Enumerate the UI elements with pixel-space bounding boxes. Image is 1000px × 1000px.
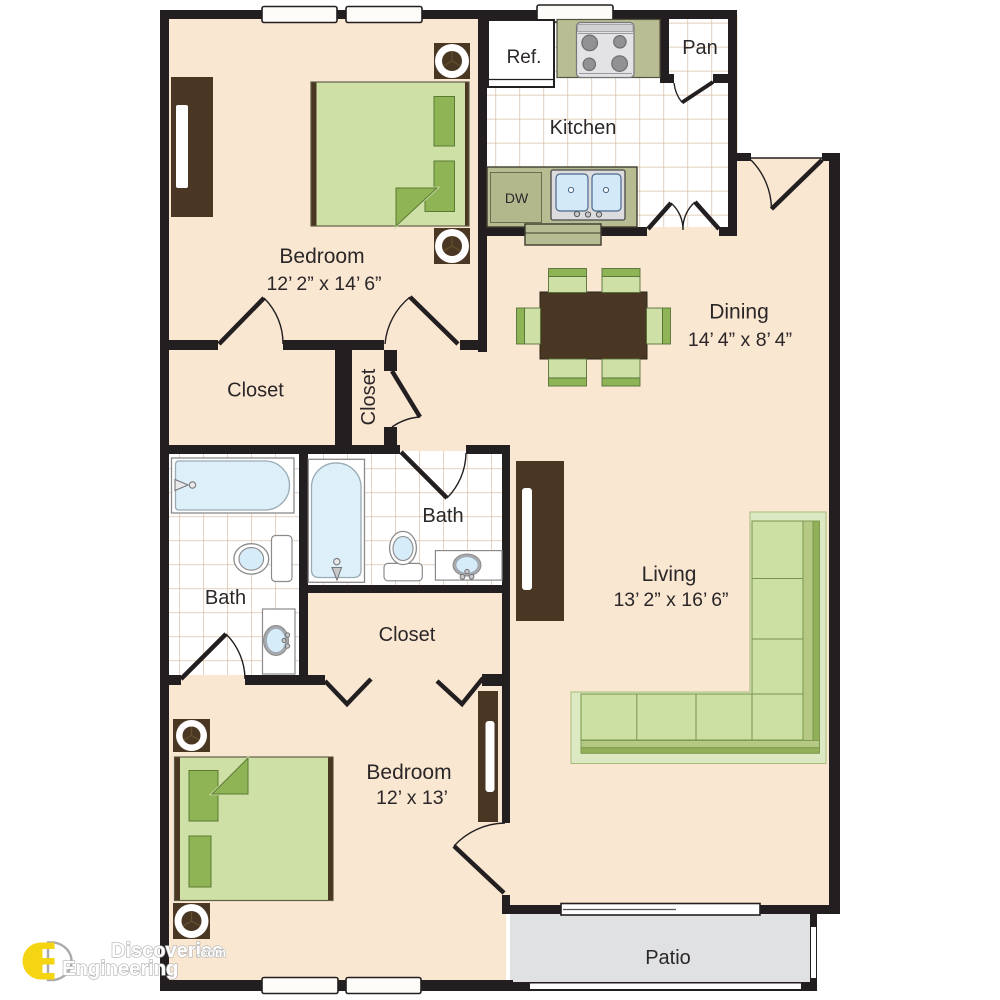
svg-text:Bath: Bath [205,587,246,609]
svg-text:Patio: Patio [645,947,691,969]
svg-text:Bath: Bath [422,505,463,527]
svg-text:Closet: Closet [227,380,284,402]
svg-text:Engineering: Engineering [62,957,178,980]
svg-text:Living: Living [642,563,697,586]
svg-text:Bedroom: Bedroom [366,761,451,784]
svg-text:12’ 2” x 14’ 6”: 12’ 2” x 14’ 6” [266,273,381,295]
svg-text:Closet: Closet [379,624,436,646]
svg-text:Kitchen: Kitchen [550,117,617,139]
svg-text:Ref.: Ref. [507,47,542,68]
svg-text:Closet: Closet [358,368,380,425]
svg-text:13’ 2” x 16’ 6”: 13’ 2” x 16’ 6” [613,589,728,611]
svg-text:12’ x 13’: 12’ x 13’ [376,787,448,809]
svg-text:Bedroom: Bedroom [279,245,364,268]
svg-text:DW: DW [505,190,529,206]
svg-text:Dining: Dining [709,301,769,324]
svg-text:14’ 4” x 8’ 4”: 14’ 4” x 8’ 4” [688,329,792,351]
svg-text:Pan: Pan [682,37,718,59]
svg-text:.com: .com [197,946,226,960]
